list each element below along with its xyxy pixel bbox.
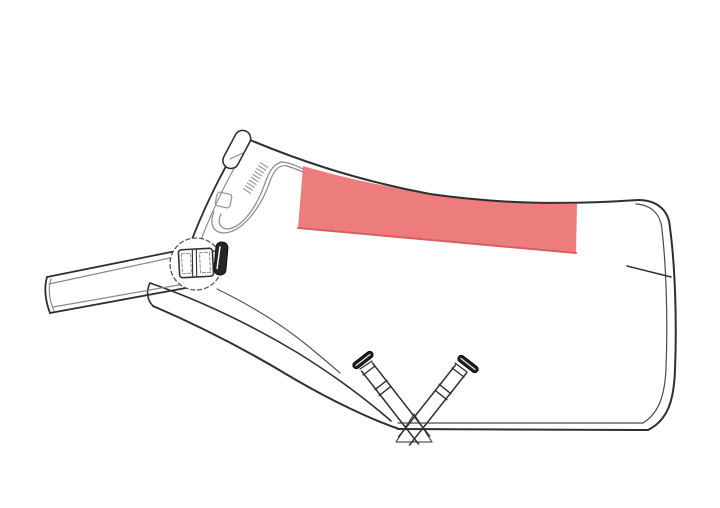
foreleg-arch-line	[217, 289, 340, 373]
collar-seam-outer	[212, 166, 303, 233]
withers-tab	[220, 128, 253, 172]
chest-strap-bottom-edge	[50, 288, 186, 313]
chest-strap-top-seam	[49, 255, 184, 284]
chest-closure-bar[interactable]	[214, 242, 229, 276]
rear-edge-outer	[638, 200, 676, 430]
tail-dart-line	[627, 266, 671, 277]
horse-rug-diagram	[0, 0, 720, 508]
stitched-strip-hatching	[244, 163, 268, 193]
bottom-hem-edge	[398, 429, 648, 430]
right-surcingle-strap[interactable]	[399, 365, 467, 445]
chest-strap-bottom-seam	[53, 284, 184, 307]
chest-strap-top-edge	[47, 249, 186, 277]
belly-sweep-upper	[150, 283, 391, 421]
diagram-canvas	[0, 0, 720, 508]
